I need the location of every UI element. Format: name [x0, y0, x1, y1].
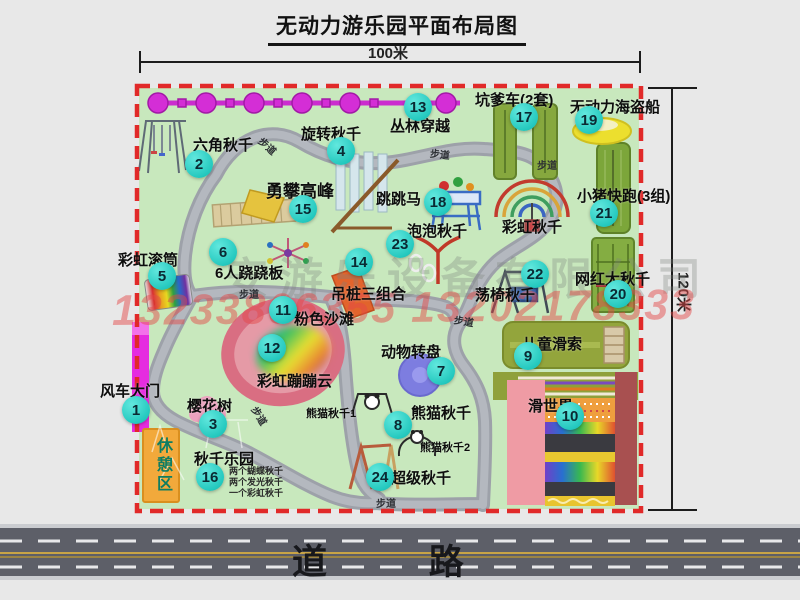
path-label: 步道 [239, 286, 259, 301]
attraction-badge-19: 19 [575, 106, 603, 134]
attraction-badge-2: 2 [185, 150, 213, 178]
attraction-badge-11: 11 [269, 296, 297, 324]
attraction-badge-9: 9 [514, 342, 542, 370]
attraction-label-23: 泡泡秋千 [407, 220, 467, 241]
attraction-label-12: 彩虹蹦蹦云 [257, 370, 332, 391]
park-layout-screenshot: 无动力游乐园平面布局图 100米 120米 [0, 0, 800, 600]
attraction-badge-22: 22 [521, 260, 549, 288]
attraction-badge-16: 16 [196, 463, 224, 491]
panda-swing-1-label: 熊猫秋千1 [306, 405, 356, 421]
attraction-badge-4: 4 [327, 137, 355, 165]
attraction-badge-1: 1 [122, 396, 150, 424]
attraction-badge-21: 21 [590, 199, 618, 227]
road-label: 道 路 [292, 534, 510, 585]
attraction-badge-10: 10 [556, 402, 584, 430]
attraction-label-22: 荡椅秋千 [475, 284, 535, 305]
attraction-badge-13: 13 [404, 93, 432, 121]
attraction-badge-20: 20 [604, 280, 632, 308]
attraction-badge-14: 14 [345, 248, 373, 276]
attraction-badge-18: 18 [424, 188, 452, 216]
attraction-badge-17: 17 [510, 103, 538, 131]
attraction-label-14: 吊桩三组合 [331, 283, 406, 304]
attraction-label-21: 小猪快跑(3组) [577, 185, 670, 206]
attraction-badge-6: 6 [209, 238, 237, 266]
attraction-label-18: 跳跳马 [376, 188, 421, 209]
swing-park-note-3: 一个彩虹秋千 [229, 486, 283, 499]
attraction-label-24: 超级秋千 [391, 467, 451, 488]
attraction-badge-5: 5 [148, 262, 176, 290]
attraction-badge-8: 8 [384, 411, 412, 439]
rainbow-swing-label: 彩虹秋千 [502, 216, 562, 237]
attraction-label-8: 熊猫秋千 [411, 402, 471, 423]
attraction-badge-15: 15 [289, 195, 317, 223]
attraction-badge-12: 12 [258, 334, 286, 362]
slide-world-icon [493, 372, 638, 506]
path-label: 步道 [537, 157, 557, 172]
path-label: 步道 [429, 145, 450, 162]
panda-swing-2-label: 熊猫秋千2 [420, 439, 470, 455]
attraction-badge-24: 24 [366, 463, 394, 491]
attraction-badge-3: 3 [199, 410, 227, 438]
attraction-badge-23: 23 [386, 230, 414, 258]
path-label: 步道 [453, 311, 475, 329]
attraction-badge-7: 7 [427, 357, 455, 385]
path-label: 步道 [376, 495, 396, 510]
rest-area-label: 休憩区 [150, 437, 174, 494]
attraction-label-11: 粉色沙滩 [294, 308, 354, 329]
